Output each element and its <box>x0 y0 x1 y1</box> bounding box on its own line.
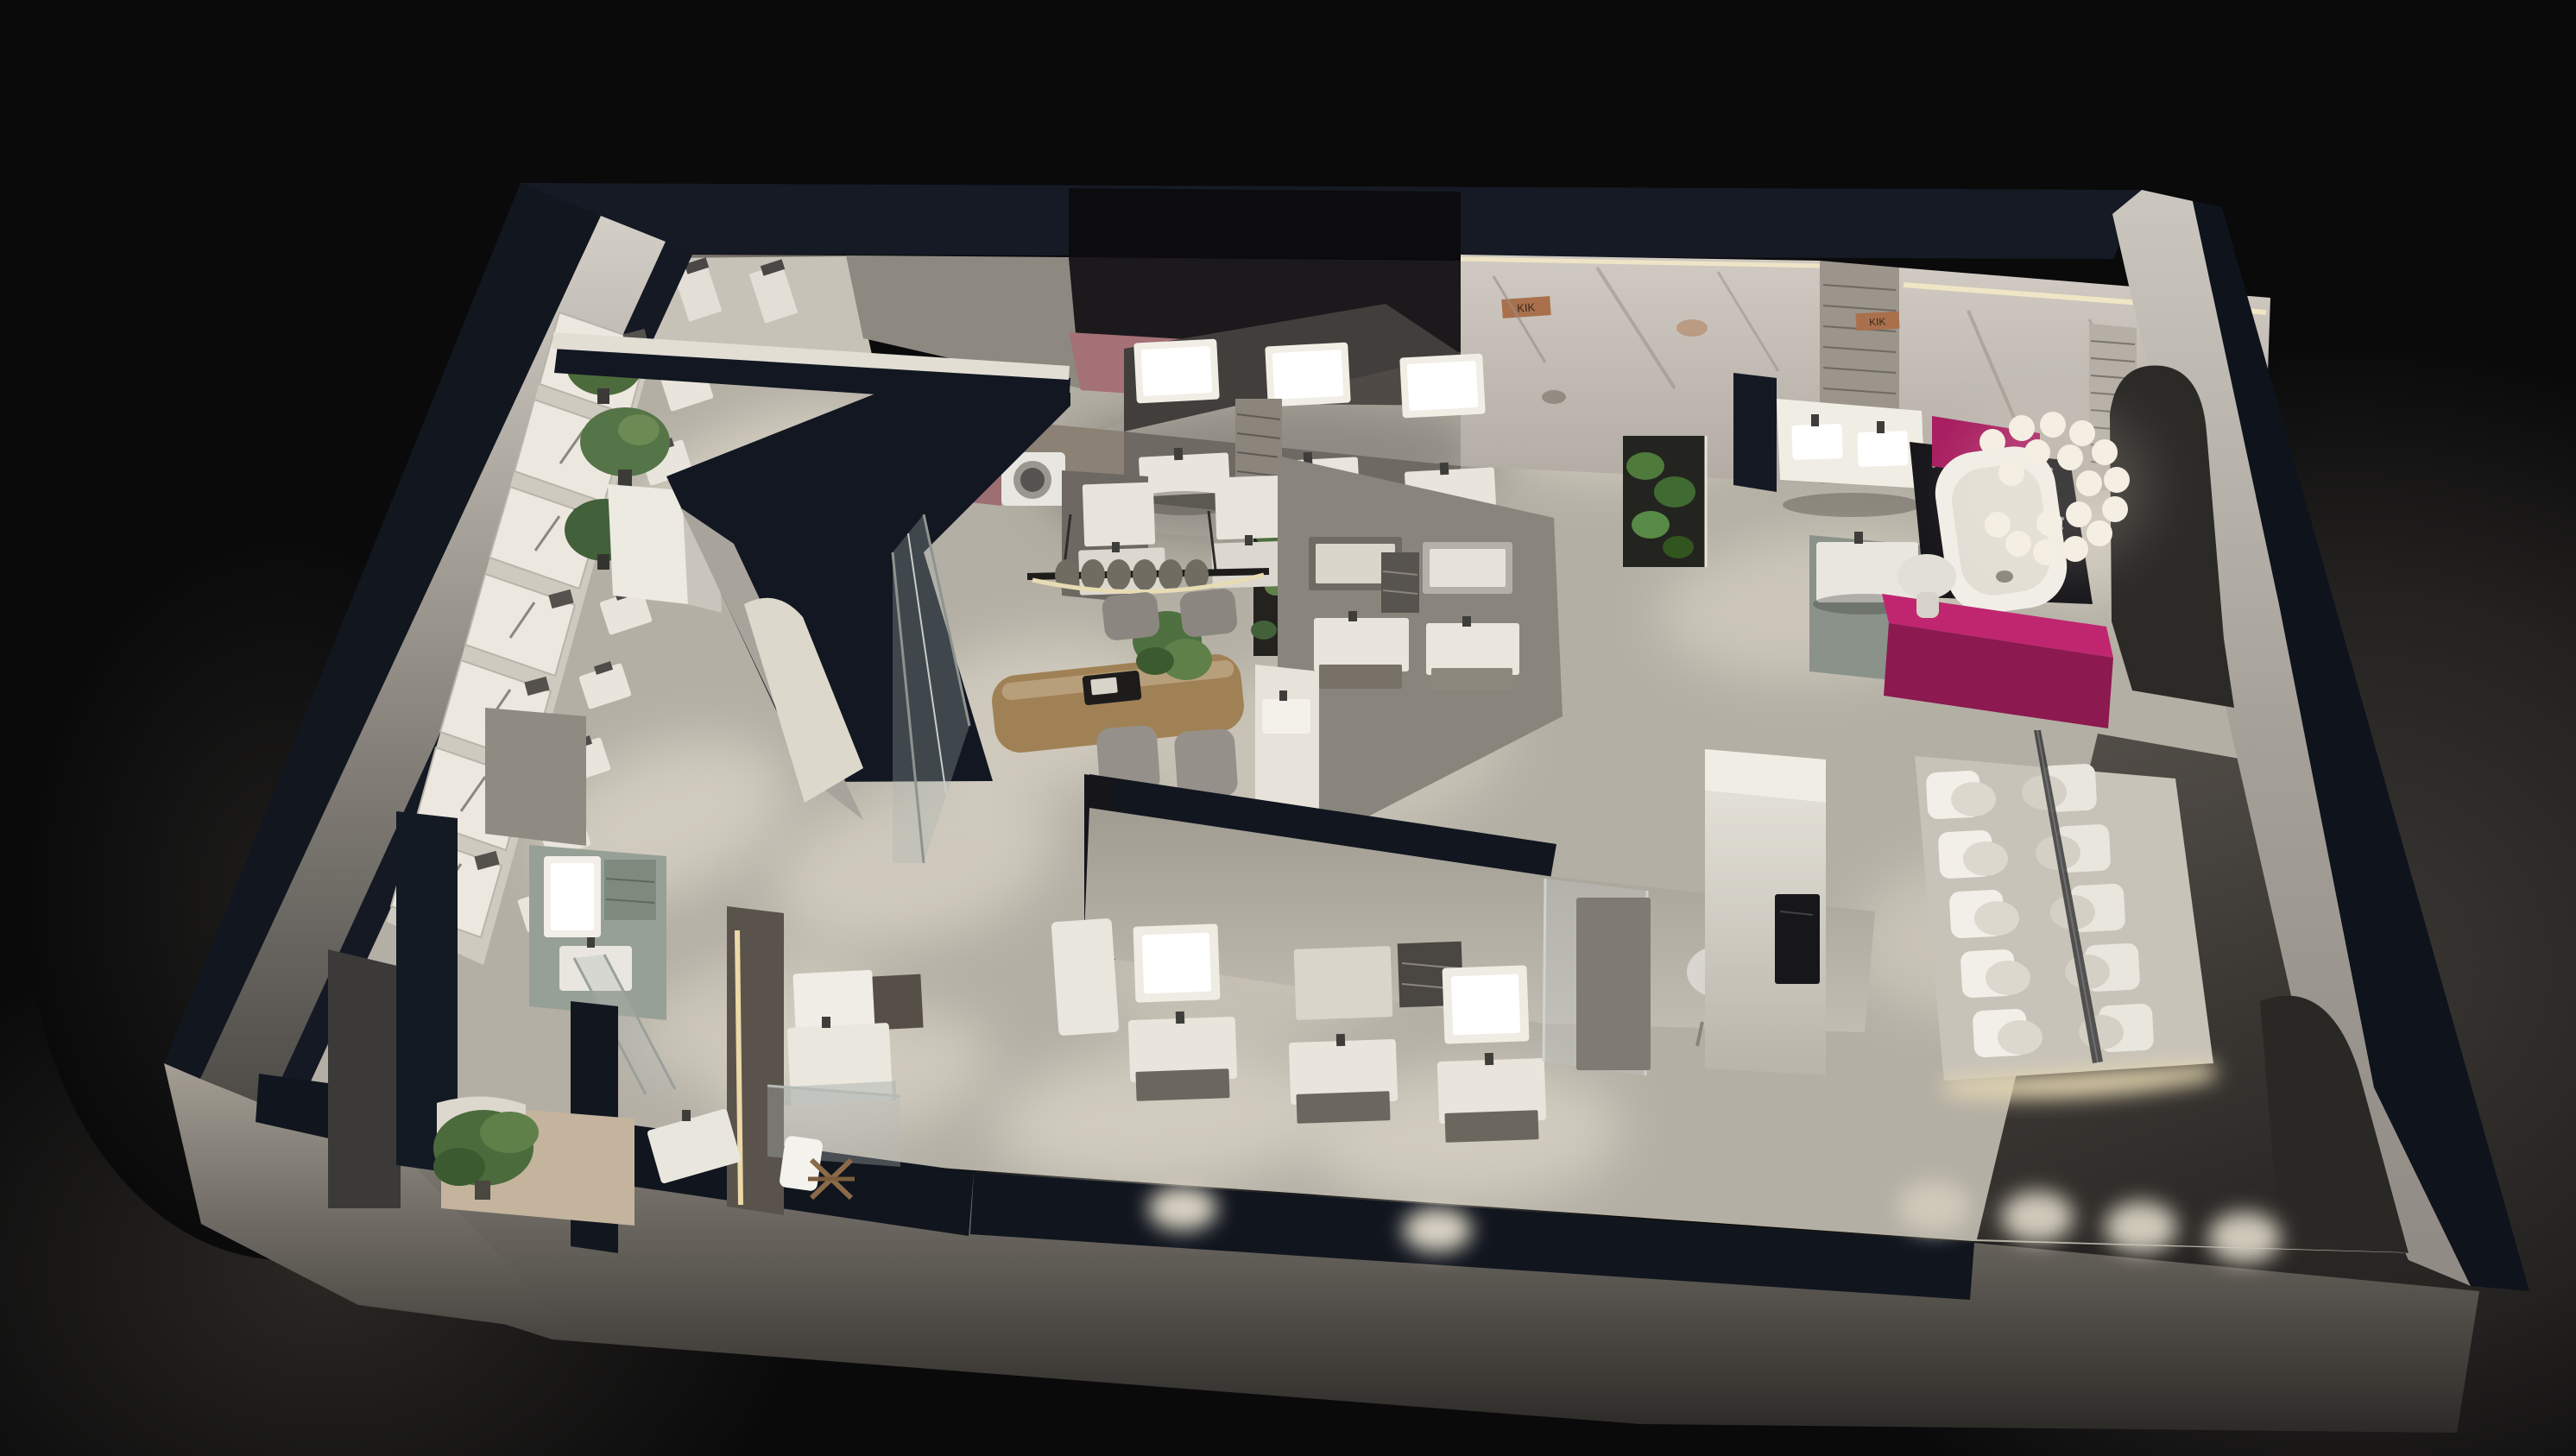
svg-text:KIK: KIK <box>1869 316 1886 329</box>
svg-text:KIK: KIK <box>1517 300 1536 314</box>
